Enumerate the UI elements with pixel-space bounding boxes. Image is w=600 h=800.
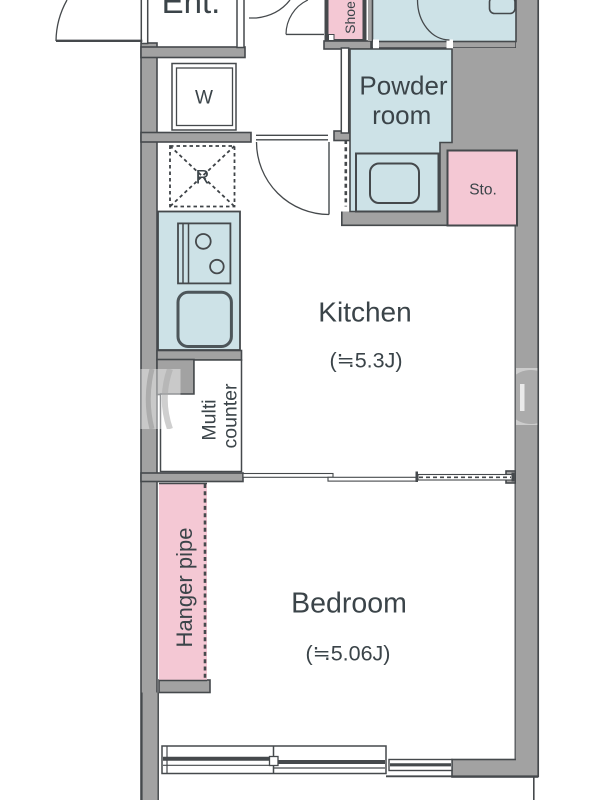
svg-text:Bedroom: Bedroom (291, 588, 407, 620)
svg-text:room: room (372, 100, 431, 130)
svg-text:W: W (195, 88, 213, 109)
svg-text:Sto.: Sto. (469, 182, 497, 199)
svg-text:Kitchen: Kitchen (318, 297, 411, 328)
svg-text:Hanger pipe: Hanger pipe (172, 528, 197, 648)
svg-text:counter: counter (220, 383, 242, 449)
svg-text:Powder: Powder (359, 70, 447, 100)
svg-text:(≒5.3J): (≒5.3J) (330, 349, 403, 373)
svg-text:R: R (196, 168, 210, 189)
svg-text:Multi: Multi (199, 399, 221, 440)
svg-text:Shoe: Shoe (342, 1, 358, 34)
svg-text:(≒5.06J): (≒5.06J) (306, 642, 391, 666)
svg-text:Ent.: Ent. (162, 0, 221, 20)
